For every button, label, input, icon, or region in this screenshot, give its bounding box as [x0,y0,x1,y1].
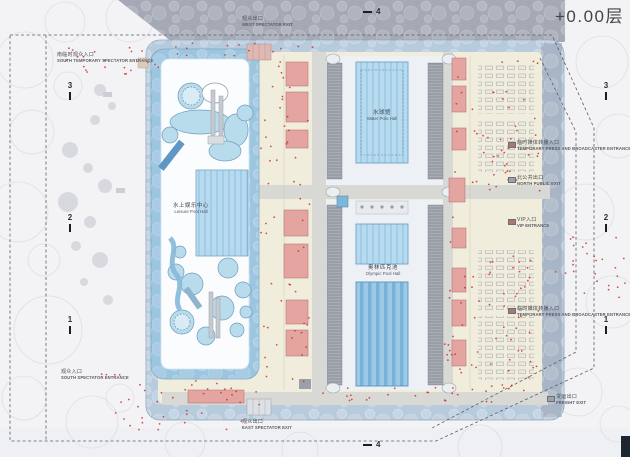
entrance-label-en: FREIGHT EXIT [556,400,586,405]
grid-number: 2 [62,214,78,222]
label-temporary-press-entrance-north: 临时媒体转播入口 TEMPORARY PRESS AND BROADCASTER… [517,140,630,152]
warmup-pool [356,224,408,264]
grid-number: 1 [598,316,614,324]
grid-mark-top-4: 4 [363,8,380,16]
entrance-label-en: SOUTH TEMPORARY SPECTATOR ENTRANCE [57,58,153,63]
leisure-pool-hall [151,49,259,379]
grid-number: 2 [598,214,614,222]
label-water-polo-hall: 水球馆 Water Polo Hall [352,108,412,121]
grid-mark-left-2: 2 [62,214,78,232]
olympic-pool [356,282,408,386]
label-freight-exit: 货运出口 FREIGHT EXIT [556,394,586,406]
hall-label-zh: 奥林匹克池 [348,263,418,271]
entrance-marker-icon [508,308,516,314]
label-leisure-pool-hall: 水上娱乐中心 Leisure Pool Hall [156,201,226,214]
hall-label-en: Olympic Pool Hall [348,271,418,276]
label-east-spectator-exit: 观众出口 EAST SPECTATOR EXIT [242,419,292,431]
label-vip-entrance: VIP入口 VIP ENTRANCE [517,217,549,229]
diving-platforms [356,201,408,214]
entrance-label-en: TEMPORARY PRESS AND BROADCASTER ENTRANCE [517,146,630,151]
grid-number: 3 [62,82,78,90]
page-corner-mark [621,436,630,457]
grid-mark-bottom-4: 4 [363,441,380,449]
olympic-pool-hall [326,196,443,390]
hall-label-en: Water Polo Hall [352,116,412,121]
floor-plan-canvas [0,0,630,457]
entrance-marker-icon [508,219,516,225]
entrance-label-en: VIP ENTRANCE [517,223,549,228]
grid-number: 1 [62,316,78,324]
exit-marker-icon [508,177,516,183]
label-south-temporary-spectator-entrance: 南临时观众入口 SOUTH TEMPORARY SPECTATOR ENTRAN… [57,52,153,64]
entrance-marker-icon [508,142,516,148]
grid-mark-right-1: 1 [598,316,614,334]
entrance-label-en: NORTH PUBLIC EXIT [517,181,561,186]
grid-number: 4 [376,441,380,449]
entrance-label-en: SOUTH SPECTATOR ENTRANCE [61,375,129,380]
grid-mark-right-3: 3 [598,82,614,100]
hall-label-zh: 水上娱乐中心 [156,201,226,209]
label-north-public-exit: 北公共出口 NORTH PUBLIC EXIT [517,175,561,187]
grid-number: 3 [598,82,614,90]
landscape-trees [58,84,125,305]
grid-mark-left-1: 1 [62,316,78,334]
entrance-label-en: EAST SPECTATOR EXIT [242,425,292,430]
grid-number: 4 [376,8,380,16]
entrance-label-en: WEST SPECTATOR EXIT [242,22,293,27]
label-south-spectator-entrance: 观众入口 SOUTH SPECTATOR ENTRANCE [61,369,129,381]
label-west-spectator-exit: 观众出口 WEST SPECTATOR EXIT [242,16,293,28]
hall-label-en: Leisure Pool Hall [156,209,226,214]
freight-marker-icon [547,396,555,402]
hall-label-zh: 水球馆 [352,108,412,116]
middle-rooms [284,55,308,390]
floor-plan-page: +0.00层 水上娱乐中心 Leisure Pool Hall 水球馆 Wate… [0,0,630,457]
grid-mark-right-2: 2 [598,214,614,232]
top-shadow-band [118,0,565,42]
label-olympic-pool-hall: 奥林匹克池 Olympic Pool Hall [348,263,418,276]
page-title: +0.00层 [555,2,624,27]
grid-mark-left-3: 3 [62,82,78,100]
